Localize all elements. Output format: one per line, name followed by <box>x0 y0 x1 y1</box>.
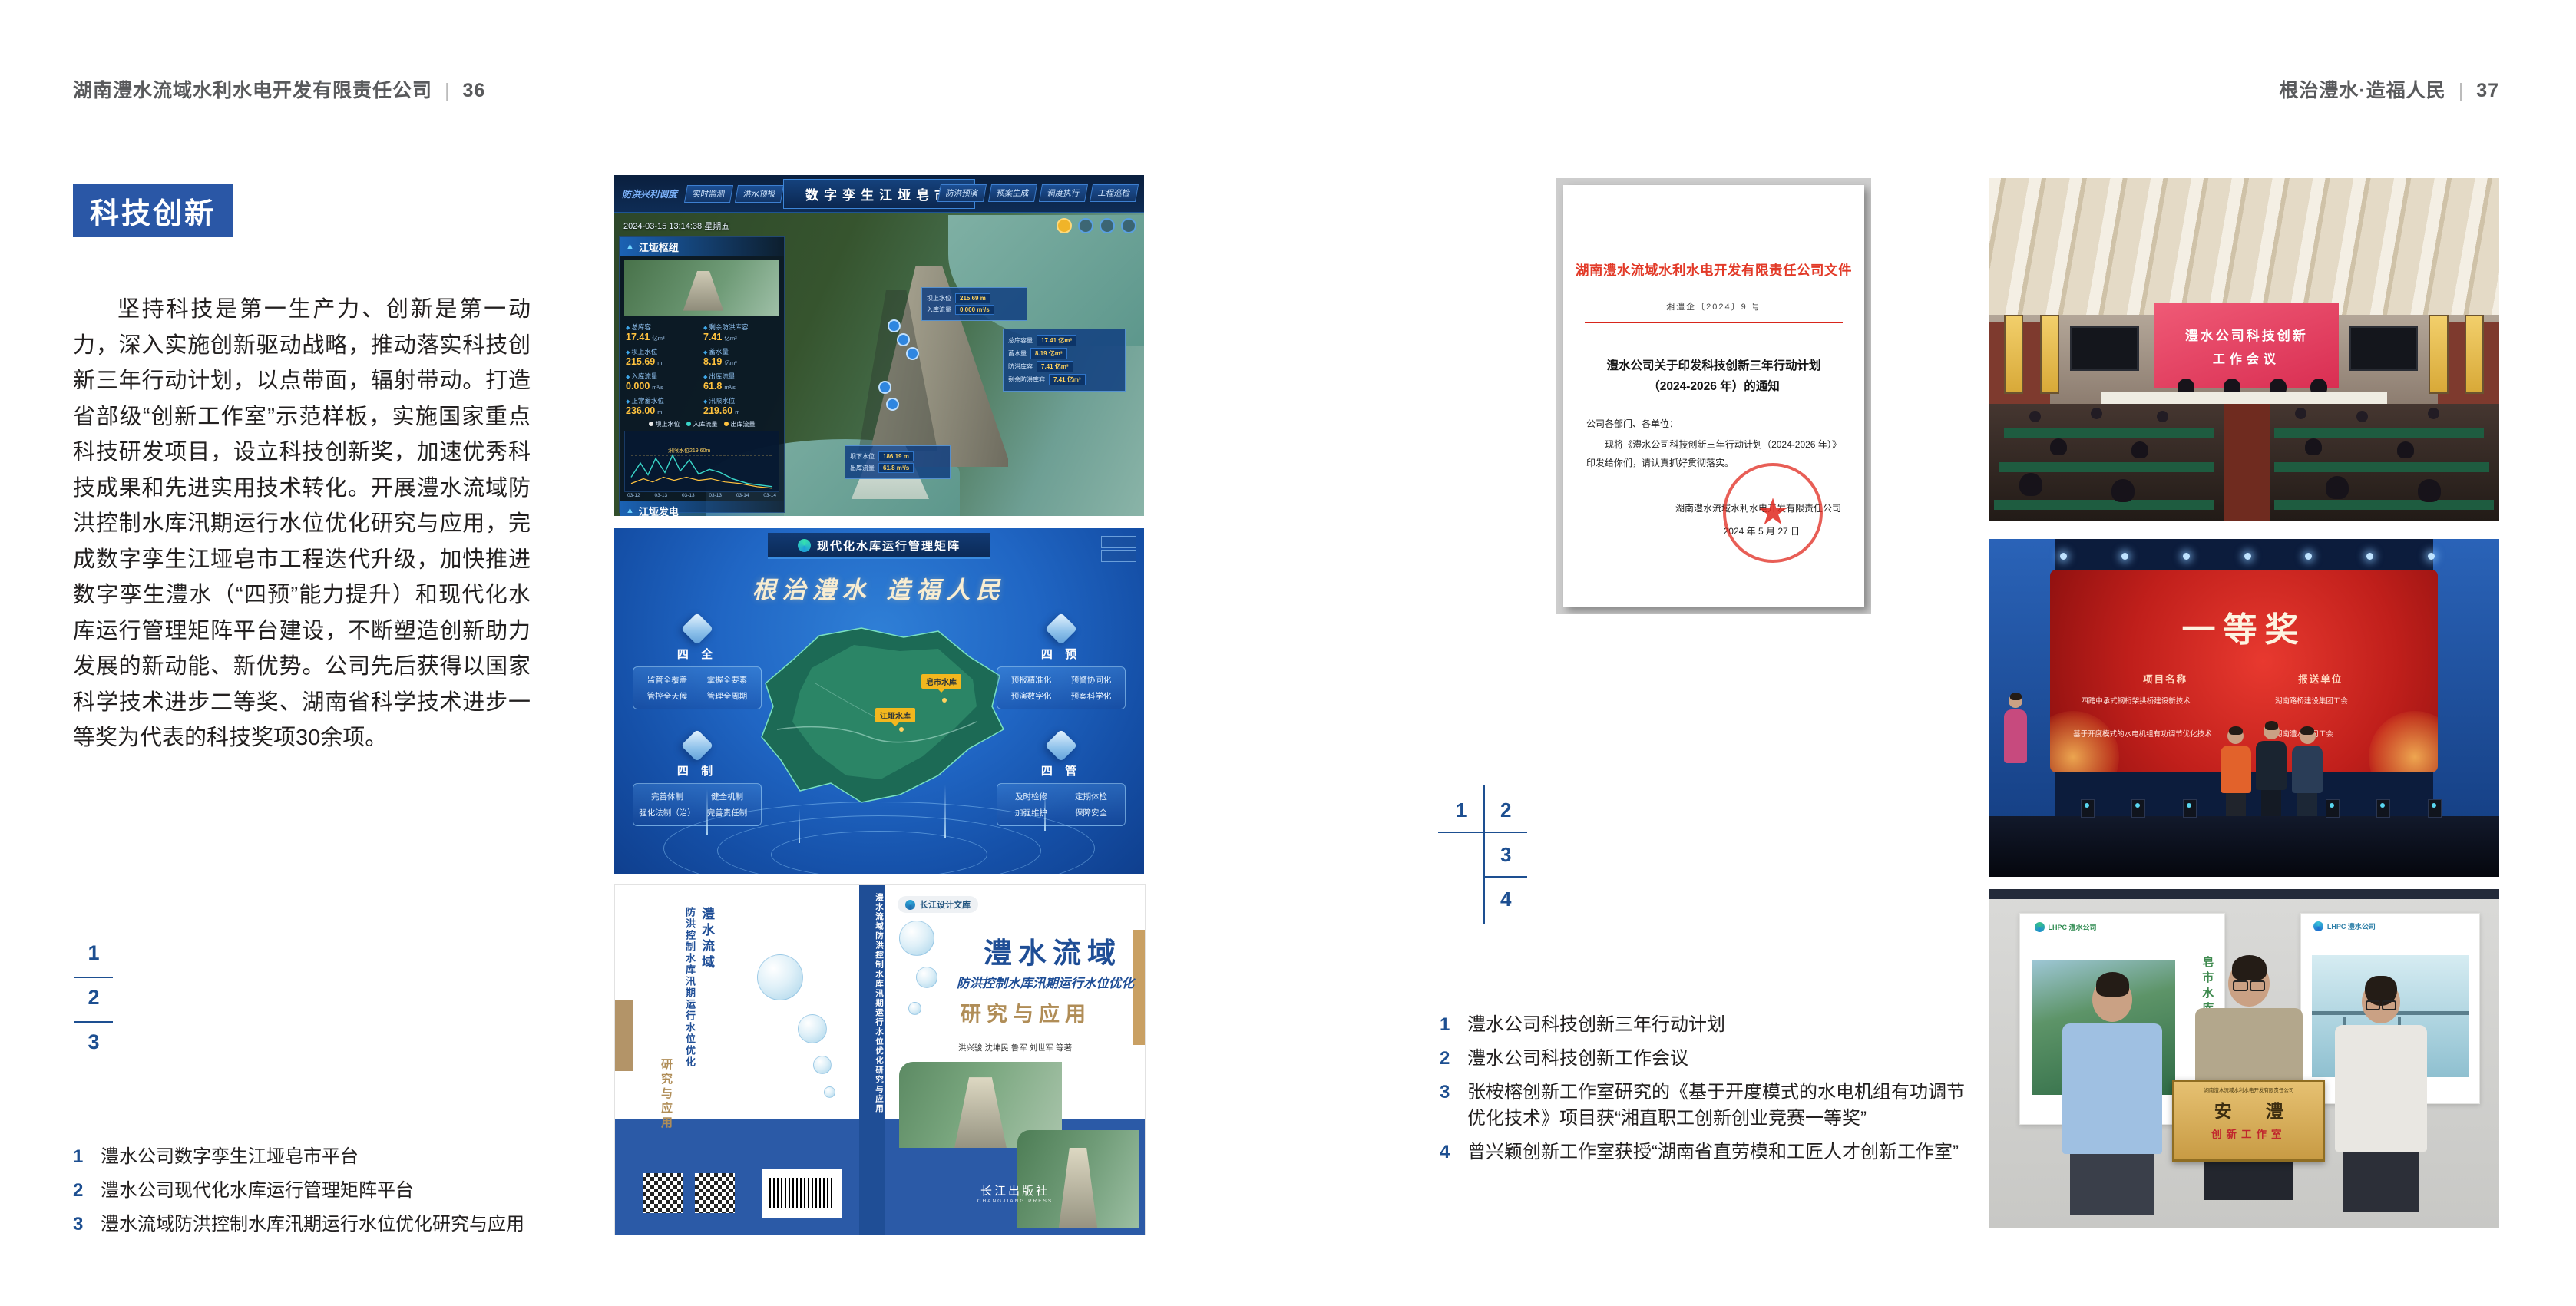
caption-row: 4曾兴颖创新工作室获授“湖南省直劳模和工匠人才创新工作室” <box>1440 1139 1971 1165</box>
dashboard-top-bar: 防洪兴利调度 实时监测 洪水预报 防洪预警 数字孪生江垭皂市 防洪预演 预案生成… <box>614 175 1144 213</box>
monitor-3d-icon <box>681 613 713 645</box>
workshop-plaque: 湖南澧水流域水利水电开发有限责任公司 安 澧 创新工作室 <box>2172 1080 2325 1162</box>
light-pillar <box>706 789 708 835</box>
back-tan-block <box>615 1000 633 1071</box>
wall-lamp <box>2004 315 2023 393</box>
spine-title: 澧水流域防洪控制水库汛期运行水位优化研究与应用 <box>859 893 885 1146</box>
green-desk-row <box>2004 428 2214 438</box>
dashboard-right-tabs: 防洪预演 预案生成 调度执行 工程巡检 <box>937 184 1139 202</box>
company-name: 湖南澧水流域水利水电开发有限责任公司 <box>73 80 432 101</box>
document-red-rule <box>1585 322 1843 323</box>
water-droplet <box>908 1002 921 1015</box>
wall-lamp <box>2465 315 2484 393</box>
lhpc-logo: LHPC 澧水公司 <box>2313 921 2376 931</box>
document-title: 澧水公司关于印发科技创新三年行动计划（2024-2026 年）的通知 <box>1596 355 1832 397</box>
user-icon[interactable] <box>1057 218 1072 233</box>
spotlight <box>2183 553 2190 560</box>
series-name: 长江设计文库 <box>920 898 971 911</box>
panel-header-power: ▲ 江垭发电 <box>620 501 784 516</box>
changjiang-logo-icon <box>905 900 915 910</box>
document-body: 现将《澧水公司科技创新三年行动计划（2024-2026 年）》印发给你们，请认真… <box>1586 435 1841 472</box>
wall-tv <box>2349 326 2417 372</box>
figure-number-2: 2 <box>74 986 113 1010</box>
chart-svg <box>625 431 779 491</box>
panel-header-hub: ▲ 江垭枢纽 <box>620 237 784 256</box>
lhpc-logo-icon <box>2313 921 2323 931</box>
plaque-name: 安 澧 <box>2174 1096 2323 1122</box>
stage-light-fixture <box>2183 799 2197 818</box>
header-separator: | <box>2459 80 2465 101</box>
caption-text: 澧水流域防洪控制水库汛期运行水位优化研究与应用 <box>101 1212 524 1238</box>
column-unit: 报送单位 <box>2298 671 2343 686</box>
audience-head <box>2019 473 2042 496</box>
column-project: 项目名称 <box>2143 671 2187 686</box>
digital-twin-dashboard-photo: 防洪兴利调度 实时监测 洪水预报 防洪预警 数字孪生江垭皂市 防洪预演 预案生成… <box>614 175 1144 516</box>
stat-cell: 蓄水量8.19亿m³ <box>702 345 779 369</box>
caption-number: 2 <box>73 1178 101 1204</box>
forecast-3d-icon <box>1045 613 1077 645</box>
gate-marker[interactable] <box>886 398 899 411</box>
tab-dispatch-execution[interactable]: 调度执行 <box>1039 184 1088 202</box>
ripple-ring <box>771 831 987 874</box>
panel-siquan: 四 全 监管全覆盖掌握全要素 管控全天候管理全周期 <box>633 617 762 709</box>
audience-head <box>2131 441 2148 458</box>
publisher-name-en: CHANGJIANG PRESS <box>885 1199 1145 1204</box>
stage-light-fixture <box>2376 799 2390 818</box>
figure-number-divider <box>74 977 113 978</box>
dashboard-toolbar-icons <box>1057 218 1136 233</box>
document-red-header: 湖南澧水流域水利水电开发有限责任公司文件 <box>1563 260 1864 279</box>
meeting-screen: 澧水公司科技创新 工作会议 <box>2154 303 2338 389</box>
water-droplet <box>757 954 803 1000</box>
page-number-left: 36 <box>463 80 486 101</box>
figure-number-3: 3 <box>74 1030 113 1054</box>
header-wing-line <box>637 544 752 544</box>
dashboard-section-label: 防洪兴利调度 <box>622 187 677 200</box>
reservoir-label-jiangya[interactable]: 江垭水库 <box>875 708 915 722</box>
award-ceremony-photo: 一等奖 项目名称 报送单位 四跨中承式钢桁架拱桥建设新技术 湖南路桥建设集团工会… <box>1989 539 2499 877</box>
tab-project-inspection[interactable]: 工程巡检 <box>1090 184 1139 202</box>
seal-star-icon: ★ <box>1756 494 1789 531</box>
dam-thumb-shape <box>683 271 724 311</box>
tab-realtime-monitor[interactable]: 实时监测 <box>684 185 733 203</box>
green-desk-row <box>2274 462 2488 472</box>
audience-head <box>2326 476 2349 499</box>
center-aisle <box>2224 404 2270 521</box>
host-figure <box>1999 694 2032 763</box>
plaque-subtitle: 创新工作室 <box>2174 1126 2323 1141</box>
ceiling <box>1989 178 2499 315</box>
spotlight <box>2060 553 2067 560</box>
caption-number: 1 <box>73 1144 101 1170</box>
gate-marker[interactable] <box>897 333 910 346</box>
book-title-tail: 研究与应用 <box>961 997 1091 1027</box>
green-desk-row <box>1994 500 2214 510</box>
woman-white-tee <box>2326 980 2437 1212</box>
figure-map-4: 4 <box>1500 888 1511 911</box>
document-page: 湖南澧水流域水利水电开发有限责任公司文件 湘澧企〔2024〕9 号 澧水公司关于… <box>1563 185 1864 607</box>
reservoir-label-zaoshi[interactable]: 皂市水库 <box>921 674 961 689</box>
downstream-tooltip: 坝下水位186.19 m 出库流量61.8 m³/s <box>845 445 951 479</box>
spotlight <box>2121 553 2128 560</box>
layers-icon[interactable] <box>1078 218 1093 233</box>
lhpc-logo-icon <box>2035 922 2045 932</box>
front-tan-bookmark <box>1133 930 1145 1045</box>
caption-row: 1 澧水公司数字孪生江垭皂市平台 <box>73 1144 359 1170</box>
ceiling-edge <box>1989 889 2499 899</box>
glasses-icon <box>2382 1000 2396 1010</box>
brochure-spread: 湖南澧水流域水利水电开发有限责任公司|36 根治澧水·造福人民|37 科技创新 … <box>0 0 2576 1306</box>
bolt-icon: ▲ <box>626 506 634 515</box>
panel-title: 江垭枢纽 <box>639 240 679 254</box>
stat-cell: 入库流量0.000m³/s <box>624 369 702 394</box>
section-body-paragraph: 坚持科技是第一生产力、创新是第一动力，深入实施创新驱动战略，推动落实科技创新三年… <box>73 292 531 756</box>
matrix-platform-photo: 现代化水库运行管理矩阵 根治澧水 造福人民 皂市水库 江垭水库 四 全 监管全覆… <box>614 528 1144 874</box>
document-number: 湘澧企〔2024〕9 号 <box>1563 300 1864 312</box>
running-header-left: 湖南澧水流域水利水电开发有限责任公司|36 <box>73 75 485 103</box>
stage-floor <box>1989 816 2499 877</box>
caption-row: 3张桉榕创新工作室研究的《基于开度模式的水电机组有功调节优化技术》项目获“湘直职… <box>1440 1080 1971 1132</box>
matrix-title: 现代化水库运行管理矩阵 <box>817 537 961 554</box>
reservoir-water <box>948 215 1144 346</box>
stage-light-fixture <box>2081 799 2095 818</box>
audience-head <box>2418 479 2441 502</box>
caption-text: 澧水公司现代化水库运行管理矩阵平台 <box>101 1178 414 1204</box>
innovation-meeting-photo: 澧水公司科技创新 工作会议 <box>1989 178 2499 521</box>
figure-number-divider <box>74 1021 113 1023</box>
wall-tv <box>2070 326 2138 372</box>
first-prize-title: 一等奖 <box>2050 602 2438 651</box>
page-number-right: 37 <box>2476 80 2499 101</box>
glasses-icon <box>2233 980 2248 991</box>
wall-lamp <box>2429 315 2448 393</box>
stat-cell: 剩余防洪库容7.41亿m³ <box>702 320 779 345</box>
dam-thumbnail <box>624 260 779 316</box>
stage-light-fixture <box>2326 799 2340 818</box>
audience-head <box>2111 479 2135 502</box>
stage-light-fixture <box>2131 799 2145 818</box>
figure-map-2: 2 <box>1500 798 1511 822</box>
gate-marker[interactable] <box>888 319 901 332</box>
maintenance-3d-icon <box>1045 729 1077 762</box>
stage-light-fixture <box>2428 799 2442 818</box>
audience-head <box>2397 441 2414 458</box>
green-desk-row <box>2274 500 2494 510</box>
publisher-name: 长江出版社 <box>885 1182 1145 1199</box>
capacity-tooltip: 总库容量17.41 亿m³ 蓄水量8.19 亿m³ 防洪库容7.41 亿m³ 剩… <box>1003 329 1126 392</box>
winner-navy <box>2287 728 2327 830</box>
audience-head <box>2295 408 2306 419</box>
figure-map-vline <box>1483 785 1485 924</box>
figure-map-hline <box>1484 876 1527 878</box>
close-button[interactable] <box>1101 536 1136 548</box>
book-title-main: 澧水流域 <box>984 930 1122 971</box>
plaque-company-line: 湖南澧水流域水利水电开发有限责任公司 <box>2174 1086 2323 1093</box>
glasses-icon <box>2366 1000 2380 1010</box>
book-front-cover: 长江设计文库 澧水流域 防洪控制水库汛期运行水位优化 研究与应用 洪兴骏 沈坤民… <box>885 885 1145 1235</box>
light-pillar <box>944 785 946 838</box>
lhpc-logo-icon <box>798 539 811 552</box>
back-vertical-subtitle: 研究与应用 <box>658 1058 674 1131</box>
publisher-mark: 长江出版社 CHANGJIANG PRESS <box>885 1182 1145 1204</box>
light-pillar <box>799 808 800 843</box>
spotlight <box>2305 553 2312 560</box>
spotlight <box>2244 553 2251 560</box>
tab-flood-rehearsal[interactable]: 防洪预演 <box>937 184 987 202</box>
section-title-badge: 科技创新 <box>73 184 233 237</box>
audience-head <box>2305 438 2322 455</box>
spotlight <box>2428 553 2435 560</box>
green-desk-row <box>2274 428 2484 438</box>
screen-title-line1: 澧水公司科技创新 <box>2185 325 2308 344</box>
matrix-header: 现代化水库运行管理矩阵 <box>768 533 990 559</box>
book-back-cover: 澧水流域 防洪控制水库汛期运行水位优化 研究与应用 <box>615 885 859 1235</box>
running-header-right: 根治澧水·造福人民|37 <box>2279 75 2499 103</box>
chart-legend: 坝上水位 入库流量 出库流量 <box>620 420 784 428</box>
water-droplet <box>899 921 934 956</box>
water-droplet <box>824 1086 835 1098</box>
gold-orb <box>2369 711 2438 772</box>
audience-head <box>2091 408 2102 419</box>
caption-number: 3 <box>73 1212 101 1238</box>
figure-map-3: 3 <box>1500 843 1511 867</box>
document-salutation: 公司各部门、各单位： <box>1586 417 1678 430</box>
flood-limit-label: 汛限水位219.60m <box>668 447 710 455</box>
screen-title-line2: 工作会议 <box>2213 349 2280 367</box>
tab-flood-forecast[interactable]: 洪水预报 <box>735 185 784 203</box>
stat-cell: 正常蓄水位236.00m <box>624 394 702 418</box>
header-separator: | <box>445 80 451 101</box>
book-authors: 洪兴骏 沈坤民 鲁军 刘世军 等著 <box>885 1042 1145 1053</box>
dam-photo-band <box>1017 1130 1139 1228</box>
panel-siyu: 四 预 预报精准化预警协同化 预演数字化预案科学化 <box>997 617 1126 709</box>
green-desk-row <box>1999 462 2213 472</box>
figure-map-1: 1 <box>1456 798 1467 822</box>
glasses-icon <box>2250 980 2265 991</box>
dashboard-timestamp: 2024-03-15 13:14:38 星期五 <box>623 220 729 232</box>
audience-head <box>2050 438 2067 455</box>
water-level-chart: 汛限水位219.60m <box>624 431 779 492</box>
presenter-suit <box>2251 723 2291 828</box>
back-vertical-title: 澧水流域 防洪控制水库汛期运行水位优化 <box>683 907 716 1068</box>
stat-cell: 汛限水位219.60m <box>702 394 779 418</box>
stat-cell: 坝上水位215.69m <box>624 345 702 369</box>
book-spine: 澧水流域防洪控制水库汛期运行水位优化研究与应用 <box>859 885 885 1235</box>
unit-row: 湖南路桥建设集团工会 <box>2275 695 2348 706</box>
water-droplet <box>916 967 937 988</box>
dam-shape <box>954 1077 1007 1148</box>
man-blue-polo <box>2055 977 2170 1215</box>
reservoir-stats-grid: 总库容17.41亿m³ 剩余防洪库容7.41亿m³ 坝上水位215.69m 蓄水… <box>620 320 784 418</box>
dashboard-left-panel: ▲ 江垭枢纽 总库容17.41亿m³ 剩余防洪库容7.41亿m³ 坝上水位215… <box>619 236 785 513</box>
audience-head <box>2428 408 2439 419</box>
water-droplet <box>813 1056 832 1074</box>
menu-button[interactable] <box>1101 550 1136 562</box>
qr-code <box>695 1173 735 1213</box>
caption-row: 2澧水公司科技创新工作会议 <box>1440 1046 1971 1072</box>
book-title-sub: 防洪控制水库汛期运行水位优化 <box>957 973 1134 991</box>
water-droplet <box>798 1014 827 1043</box>
qr-code <box>643 1173 683 1213</box>
spotlight <box>2366 553 2373 560</box>
gate-marker[interactable] <box>906 347 919 360</box>
gate-marker[interactable] <box>878 381 891 394</box>
innovation-workshop-photo: LHPC 澧水公司 皂市水库 LHPC 澧水公司 <box>1989 889 2499 1228</box>
project-row: 基于开度模式的水电机组有功调节优化技术 <box>2073 728 2212 739</box>
right-captions: 1澧水公司科技创新三年行动计划 2澧水公司科技创新工作会议 3张桉榕创新工作室研… <box>1440 1012 1971 1173</box>
caption-text: 澧水公司数字孪生江垭皂市平台 <box>101 1144 359 1170</box>
lhpc-logo: LHPC 澧水公司 <box>2035 922 2097 932</box>
barcode <box>762 1169 842 1218</box>
caption-row: 2 澧水公司现代化水库运行管理矩阵平台 <box>73 1178 414 1204</box>
wall-lamp <box>2040 315 2059 393</box>
audience-head <box>2356 411 2368 422</box>
slogan-text: 根治澧水·造福人民 <box>2279 80 2445 101</box>
official-document-photo: 湖南澧水流域水利水电开发有限责任公司文件 湘澧企〔2024〕9 号 澧水公司关于… <box>1556 178 1871 614</box>
institution-3d-icon <box>681 729 713 762</box>
anchor-icon: ▲ <box>626 242 634 251</box>
project-row: 四跨中承式钢桁架拱桥建设新技术 <box>2081 695 2191 706</box>
figure-map-hline <box>1438 832 1527 833</box>
basin-terrain-map: 皂市水库 江垭水库 <box>746 614 1011 810</box>
caption-row: 3 澧水流域防洪控制水库汛期运行水位优化研究与应用 <box>73 1212 524 1238</box>
official-seal: ★ <box>1723 463 1823 563</box>
figure-number-1: 1 <box>74 941 113 965</box>
locate-icon[interactable] <box>1100 218 1115 233</box>
stat-cell: 出库流量61.8m³/s <box>702 369 779 394</box>
caption-row: 1澧水公司科技创新三年行动计划 <box>1440 1012 1971 1038</box>
series-chip: 长江设计文库 <box>898 896 978 913</box>
light-pillar <box>1044 792 1046 831</box>
upstream-tooltip: 坝上水位215.69 m 入库流量0.000 m³/s <box>921 287 1027 321</box>
calligraphy-slogan: 根治澧水 造福人民 <box>614 570 1144 605</box>
alert-icon[interactable] <box>1121 218 1136 233</box>
panel-title: 江垭发电 <box>639 504 679 517</box>
chart-x-labels: 03-1203-1303-1303-1303-1403-14 <box>620 492 784 498</box>
tab-plan-generation[interactable]: 预案生成 <box>988 184 1037 202</box>
stat-cell: 总库容17.41亿m³ <box>624 320 702 345</box>
gold-orb <box>2050 711 2119 772</box>
winner-orange <box>2216 728 2256 830</box>
book-cover-photo: 澧水流域 防洪控制水库汛期运行水位优化 研究与应用 澧水流域防洪控制水库汛期运行… <box>614 884 1146 1235</box>
